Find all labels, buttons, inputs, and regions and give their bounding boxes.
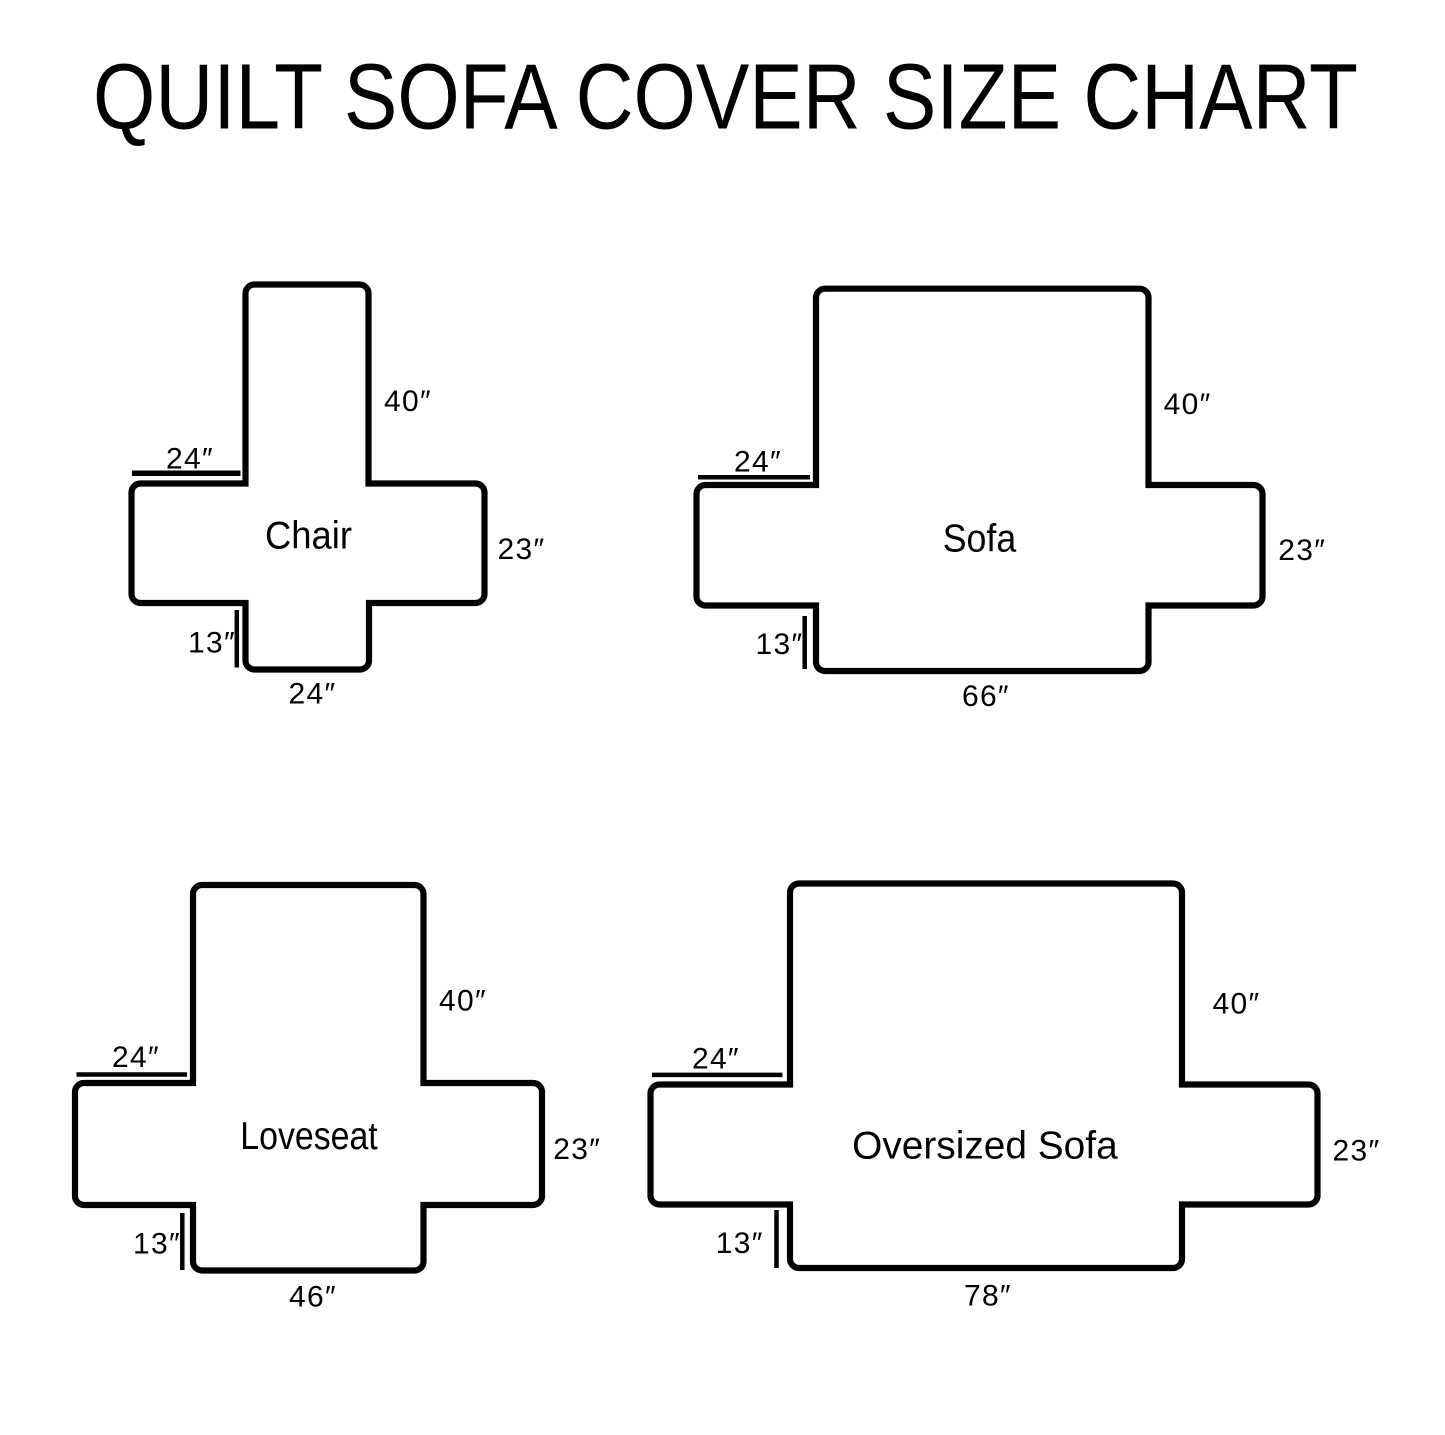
svg-text:40″: 40″ [1213,988,1261,1021]
svg-text:23″: 23″ [1278,534,1326,567]
svg-text:Sofa: Sofa [943,517,1017,560]
svg-text:40″: 40″ [1164,388,1212,421]
svg-text:QUILT SOFA COVER SIZE CHART: QUILT SOFA COVER SIZE CHART [93,45,1358,149]
svg-text:24″: 24″ [289,678,337,711]
svg-text:13″: 13″ [133,1227,181,1260]
svg-text:66″: 66″ [962,680,1010,713]
svg-text:40″: 40″ [384,385,432,418]
svg-text:13″: 13″ [188,626,236,659]
svg-text:Chair: Chair [265,514,352,557]
svg-text:13″: 13″ [756,628,804,661]
svg-text:13″: 13″ [716,1227,764,1260]
svg-text:24″: 24″ [166,442,214,475]
svg-text:23″: 23″ [498,533,546,566]
svg-text:24″: 24″ [734,446,782,479]
svg-text:Oversized Sofa: Oversized Sofa [852,1124,1118,1167]
svg-text:24″: 24″ [692,1043,740,1076]
svg-text:40″: 40″ [439,984,487,1017]
svg-text:24″: 24″ [112,1041,160,1074]
svg-text:46″: 46″ [289,1280,337,1313]
svg-text:78″: 78″ [964,1280,1012,1313]
svg-text:Loveseat: Loveseat [240,1115,378,1158]
svg-text:23″: 23″ [1333,1134,1381,1167]
svg-text:23″: 23″ [553,1133,601,1166]
